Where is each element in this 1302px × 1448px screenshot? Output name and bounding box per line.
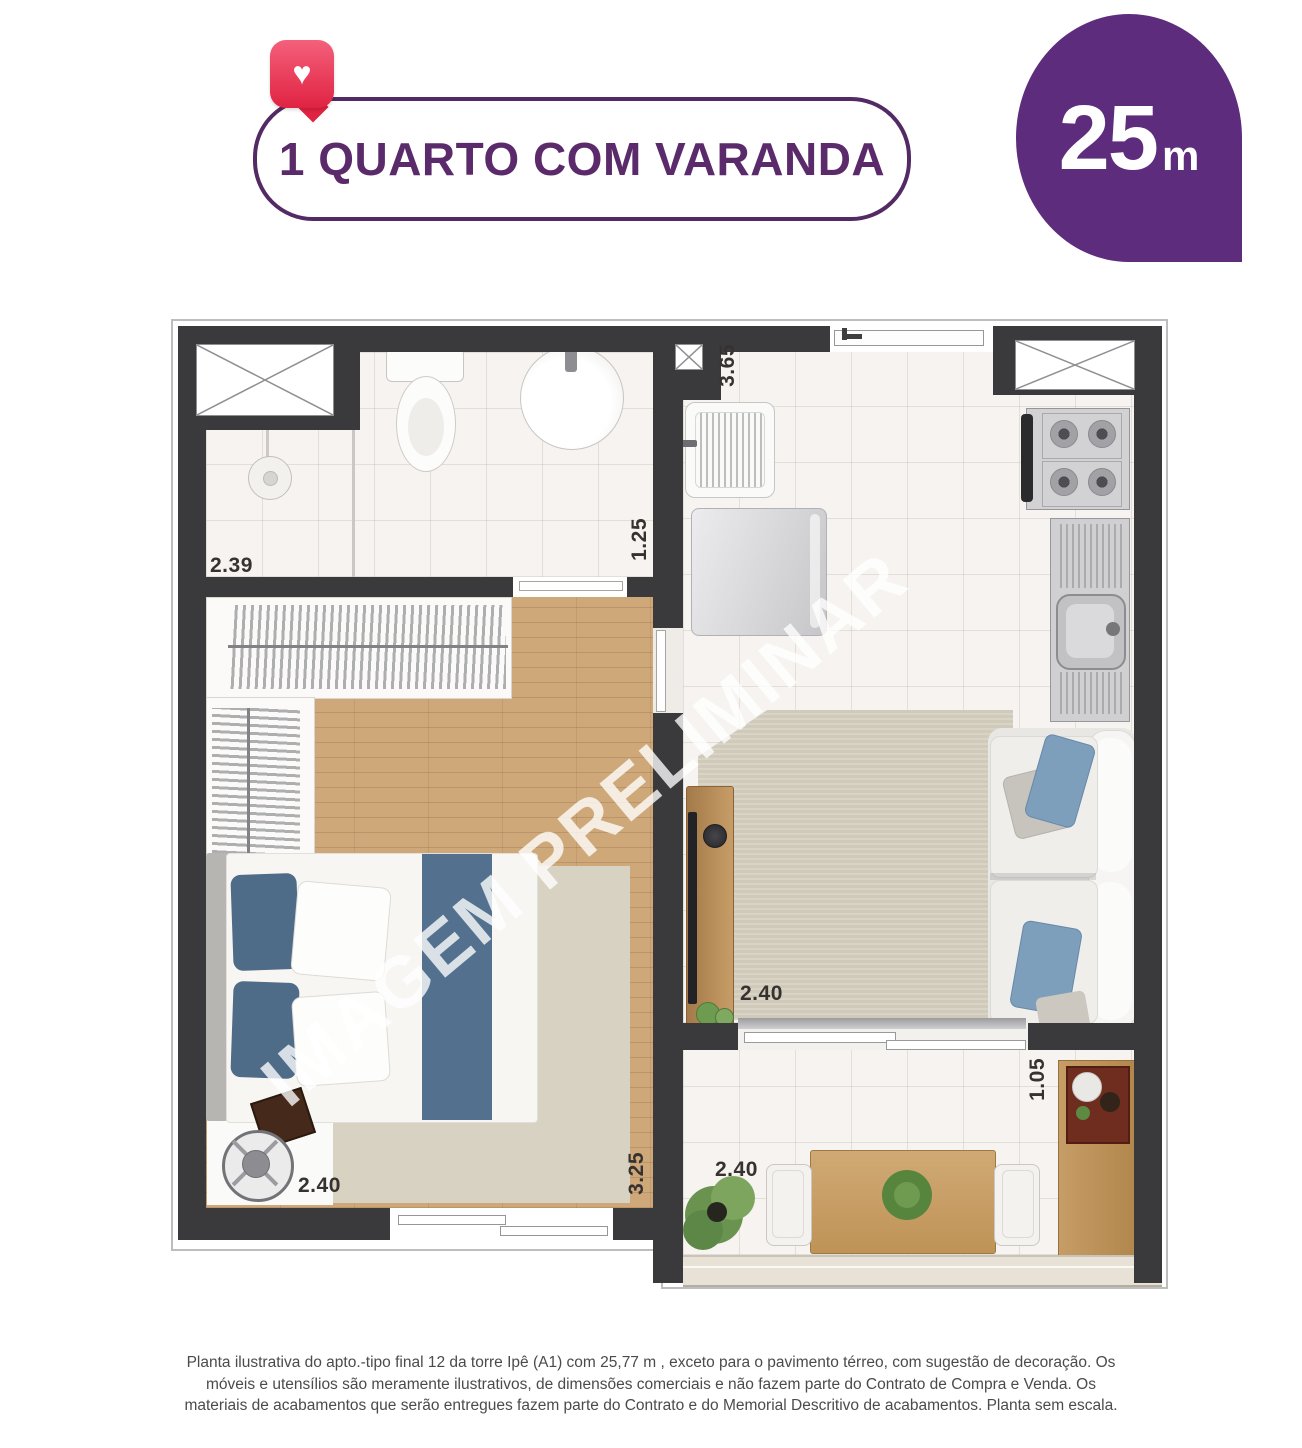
wall-bath-bottom-a <box>206 577 513 597</box>
bed-runner <box>422 854 492 1120</box>
dim-shower-width: 2.39 <box>210 554 253 578</box>
dim-balcony-depth: 1.05 <box>1026 1058 1050 1101</box>
bedroom-window-pane <box>398 1215 506 1225</box>
washing-machine <box>691 508 827 636</box>
dim-living-width: 2.40 <box>740 982 783 1006</box>
washing-machine-lid <box>810 514 820 628</box>
dim-service-length: 3.65 <box>716 344 740 387</box>
bed-pillow-white <box>291 991 391 1087</box>
balcony-sliding-pane <box>744 1032 896 1043</box>
dim-bathroom-depth: 1.25 <box>628 518 652 561</box>
door-handle-icon <box>842 328 847 340</box>
wall-balcony-right <box>1028 1023 1134 1050</box>
living-rug <box>698 710 1013 1020</box>
bed-headboard <box>206 853 228 1121</box>
speaker-icon <box>703 824 727 848</box>
page: 1 QUARTO COM VARANDA ♥ 25 m <box>0 0 1302 1448</box>
shower-cord <box>266 428 269 458</box>
bedroom-door <box>656 630 666 712</box>
bathroom-door <box>519 581 623 591</box>
area-value: 25 <box>1059 86 1157 191</box>
dim-balcony-width: 2.40 <box>715 1158 758 1182</box>
dim-bedroom-length: 3.25 <box>625 1152 649 1195</box>
herb-icon <box>1076 1106 1090 1120</box>
bed-pillow-white <box>290 880 392 982</box>
table-plant-icon <box>894 1182 920 1208</box>
tv-icon <box>688 812 697 1004</box>
shaft-box-icon <box>196 344 334 416</box>
wall-balcony-left <box>683 1023 738 1050</box>
fan-hub <box>242 1150 270 1178</box>
stove-handle <box>1021 414 1033 502</box>
laundry-tank-basin <box>695 412 765 488</box>
floorplan: 2.39 1.25 3.65 2.40 2.40 3.25 2.40 1.05 … <box>170 318 1170 1293</box>
kettle-icon <box>1100 1092 1120 1112</box>
disclaimer-text: Planta ilustrativa do apto.-tipo final 1… <box>181 1352 1121 1417</box>
plate-icon <box>1072 1072 1102 1102</box>
heart-glyph: ♥ <box>293 57 312 89</box>
drainboard-bottom <box>1056 672 1122 714</box>
area-badge: 25 m <box>1016 14 1242 262</box>
balcony-railing <box>683 1255 1162 1287</box>
burner-icon <box>1088 468 1116 496</box>
plant-pot <box>707 1202 727 1222</box>
balcony-plant <box>685 1176 760 1254</box>
shaft-box-icon <box>675 344 703 370</box>
heart-like-icon: ♥ <box>270 40 334 108</box>
bed-pillow-blue <box>230 873 299 971</box>
balcony-chair-inner <box>1002 1170 1034 1238</box>
railing-glass-line <box>683 1266 1162 1268</box>
wall-bedroom-bottom-a <box>178 1208 390 1240</box>
closet-rod-left <box>247 708 250 866</box>
bed-pillow-blue <box>230 981 299 1079</box>
dim-bedroom-width: 2.40 <box>298 1174 341 1198</box>
sofa-seat-gap <box>990 873 1096 880</box>
kitchen-faucet-icon <box>1106 622 1120 636</box>
toilet-bowl-inner <box>408 398 444 456</box>
shaft-box-icon <box>1015 340 1135 390</box>
bedroom-window-pane <box>500 1226 608 1236</box>
wall-left <box>178 326 206 1240</box>
shower-drain-dot <box>263 471 278 486</box>
page-title: 1 QUARTO COM VARANDA <box>279 132 885 186</box>
burner-icon <box>1050 420 1078 448</box>
wall-bedroom-bottom-b <box>613 1208 683 1240</box>
burner-icon <box>1050 468 1078 496</box>
balcony-sliding-pane <box>886 1040 1026 1050</box>
wall-right <box>1134 326 1162 1283</box>
wall-mid-upper <box>653 400 683 628</box>
area-unit: m <box>1162 132 1199 180</box>
balcony-door-transom <box>738 1018 1026 1029</box>
wall-mid-lower <box>653 713 683 1283</box>
title-pill: 1 QUARTO COM VARANDA <box>253 97 911 221</box>
shower-partition <box>352 430 355 577</box>
burner-icon <box>1088 420 1116 448</box>
closet-rod-top <box>228 645 508 648</box>
drainboard-top <box>1056 524 1122 588</box>
closet-clothes-left <box>212 708 300 866</box>
balcony-chair-inner <box>772 1170 804 1238</box>
